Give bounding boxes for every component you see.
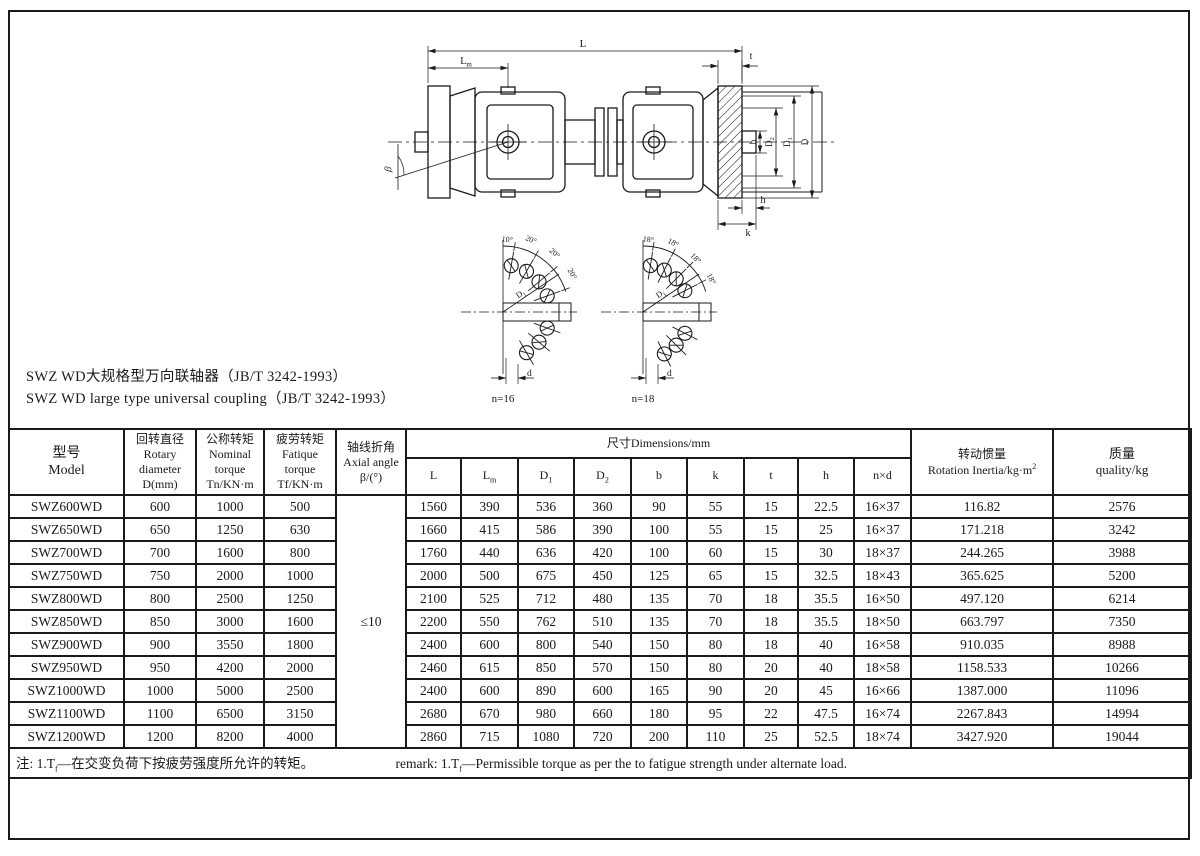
table-row: SWZ1100WD1100650031502680670980660180952… [9, 702, 1191, 725]
cell-Lm: 600 [461, 633, 518, 656]
cell-h: 35.5 [798, 587, 854, 610]
cell-D1: 536 [518, 495, 574, 518]
cell-rotary-diameter: 900 [124, 633, 196, 656]
coupling-drawing-svg: L Lm t β b D2 D1 D h k 10° 20° 20° 20° D… [370, 18, 890, 420]
cell-D1: 890 [518, 679, 574, 702]
cell-nominal-torque: 2500 [196, 587, 264, 610]
cell-D2: 510 [574, 610, 631, 633]
cell-model: SWZ800WD [9, 587, 124, 610]
bolt16-angle-2: 20° [547, 246, 561, 260]
cell-D1: 636 [518, 541, 574, 564]
cell-h: 52.5 [798, 725, 854, 748]
cell-k: 55 [687, 495, 744, 518]
cell-D2: 540 [574, 633, 631, 656]
bolt18-angle-top: 18° [642, 234, 654, 244]
table-row: SWZ800WD80025001250210052571248013570183… [9, 587, 1191, 610]
cell-Lm: 415 [461, 518, 518, 541]
cell-nominal-torque: 3550 [196, 633, 264, 656]
header-nominal-torque: 公称转矩 Nominal torque Tn/KN·m [196, 429, 264, 495]
cell-nxd: 16×66 [854, 679, 911, 702]
bolt16-d-label: d [527, 369, 532, 379]
cell-rotary-diameter: 1100 [124, 702, 196, 725]
cell-Lm: 440 [461, 541, 518, 564]
cell-fatigue-torque: 500 [264, 495, 336, 518]
cell-inertia: 910.035 [911, 633, 1053, 656]
dim-label-k: k [746, 228, 751, 239]
cell-D1: 586 [518, 518, 574, 541]
cell-k: 110 [687, 725, 744, 748]
cell-quality: 19044 [1053, 725, 1191, 748]
cell-inertia: 3427.920 [911, 725, 1053, 748]
cell-quality: 5200 [1053, 564, 1191, 587]
cell-h: 30 [798, 541, 854, 564]
cell-k: 55 [687, 518, 744, 541]
cell-h: 47.5 [798, 702, 854, 725]
cell-D2: 600 [574, 679, 631, 702]
cell-L: 2680 [406, 702, 461, 725]
bolt18-d-label: d [667, 369, 672, 379]
table-row: SWZ1000WD1000500025002400600890600165902… [9, 679, 1191, 702]
title-chinese: SWZ WD大规格型万向联轴器（JB/T 3242-1993） [26, 366, 395, 388]
table-row: SWZ1200WD1200820040002860715108072020011… [9, 725, 1191, 748]
cell-quality: 7350 [1053, 610, 1191, 633]
cell-rotary-diameter: 650 [124, 518, 196, 541]
cell-model: SWZ1000WD [9, 679, 124, 702]
cell-quality: 2576 [1053, 495, 1191, 518]
cell-inertia: 2267.843 [911, 702, 1053, 725]
cell-D1: 712 [518, 587, 574, 610]
header-dim-b: b [631, 458, 687, 495]
note-row: 注: 1.Tf—在交变负荷下按疲劳强度所允许的转矩。 remark: 1.Tf—… [9, 748, 1191, 778]
table-row: SWZ650WD65012506301660415586390100551525… [9, 518, 1191, 541]
cell-b: 180 [631, 702, 687, 725]
cell-axial-angle: ≤10 [336, 495, 406, 748]
cell-t: 18 [744, 587, 798, 610]
cell-D2: 570 [574, 656, 631, 679]
cell-Lm: 550 [461, 610, 518, 633]
spec-table-body: SWZ600WD6001000500≤101560390536360905515… [9, 495, 1191, 748]
cell-nominal-torque: 4200 [196, 656, 264, 679]
cell-rotary-diameter: 750 [124, 564, 196, 587]
cell-h: 32.5 [798, 564, 854, 587]
cell-inertia: 171.218 [911, 518, 1053, 541]
cell-nxd: 18×74 [854, 725, 911, 748]
cell-b: 150 [631, 633, 687, 656]
header-dim-h: h [798, 458, 854, 495]
table-row: SWZ900WD90035501800240060080054015080184… [9, 633, 1191, 656]
bolt18-angle-3: 18° [705, 272, 718, 286]
cell-t: 18 [744, 633, 798, 656]
cell-model: SWZ850WD [9, 610, 124, 633]
cell-nominal-torque: 5000 [196, 679, 264, 702]
cell-L: 1560 [406, 495, 461, 518]
cell-t: 15 [744, 495, 798, 518]
dim-label-beta: β [383, 165, 395, 173]
cell-D2: 450 [574, 564, 631, 587]
cell-h: 45 [798, 679, 854, 702]
note-english: remark: 1.Tf—Permissible torque as per t… [396, 756, 847, 771]
header-dim-k: k [687, 458, 744, 495]
cell-Lm: 390 [461, 495, 518, 518]
cell-h: 22.5 [798, 495, 854, 518]
cell-Lm: 615 [461, 656, 518, 679]
cell-b: 150 [631, 656, 687, 679]
cell-model: SWZ650WD [9, 518, 124, 541]
dim-label-D: D [800, 138, 810, 145]
cell-b: 90 [631, 495, 687, 518]
cell-quality: 3988 [1053, 541, 1191, 564]
cell-inertia: 1158.533 [911, 656, 1053, 679]
cell-L: 2400 [406, 679, 461, 702]
cell-b: 135 [631, 610, 687, 633]
cell-nominal-torque: 3000 [196, 610, 264, 633]
cell-k: 65 [687, 564, 744, 587]
cell-t: 15 [744, 541, 798, 564]
header-dim-D1: D1 [518, 458, 574, 495]
header-rotation-inertia: 转动惯量 Rotation Inertia/kg·m2 [911, 429, 1053, 495]
cell-fatigue-torque: 2500 [264, 679, 336, 702]
cell-D1: 850 [518, 656, 574, 679]
cell-t: 20 [744, 679, 798, 702]
cell-t: 20 [744, 656, 798, 679]
cell-nxd: 18×43 [854, 564, 911, 587]
header-axial-angle: 轴线折角 Axial angle β/(°) [336, 429, 406, 495]
cell-D2: 720 [574, 725, 631, 748]
cell-nominal-torque: 8200 [196, 725, 264, 748]
cell-D1: 675 [518, 564, 574, 587]
dim-label-L: L [580, 38, 587, 50]
bolt18-n-label: n=18 [632, 393, 655, 405]
cell-rotary-diameter: 950 [124, 656, 196, 679]
cell-fatigue-torque: 800 [264, 541, 336, 564]
header-dimensions: 尺寸Dimensions/mm [406, 429, 911, 458]
cell-k: 70 [687, 610, 744, 633]
cell-inertia: 116.82 [911, 495, 1053, 518]
cell-t: 15 [744, 564, 798, 587]
cell-quality: 3242 [1053, 518, 1191, 541]
cell-D1: 1080 [518, 725, 574, 748]
cell-h: 40 [798, 656, 854, 679]
bolt16-angle-1: 20° [524, 233, 538, 246]
cell-quality: 8988 [1053, 633, 1191, 656]
cell-quality: 10266 [1053, 656, 1191, 679]
cell-Lm: 525 [461, 587, 518, 610]
cell-fatigue-torque: 630 [264, 518, 336, 541]
cell-L: 2100 [406, 587, 461, 610]
cell-k: 80 [687, 633, 744, 656]
cell-b: 135 [631, 587, 687, 610]
bolt-circle-view-16 [461, 240, 577, 384]
cell-nxd: 16×37 [854, 495, 911, 518]
header-fatigue-torque: 疲劳转矩 Fatique torque Tf/KN·m [264, 429, 336, 495]
cell-D1: 980 [518, 702, 574, 725]
dim-label-h: h [761, 195, 766, 206]
header-model: 型号 Model [9, 429, 124, 495]
cell-quality: 6214 [1053, 587, 1191, 610]
cell-D2: 480 [574, 587, 631, 610]
cell-Lm: 715 [461, 725, 518, 748]
cell-nxd: 16×50 [854, 587, 911, 610]
cell-inertia: 1387.000 [911, 679, 1053, 702]
header-quality: 质量 quality/kg [1053, 429, 1191, 495]
spec-table-head: 型号 Model 回转直径 Rotary diameter D(mm) 公称转矩… [9, 429, 1191, 495]
cell-model: SWZ600WD [9, 495, 124, 518]
cell-b: 100 [631, 518, 687, 541]
cell-fatigue-torque: 1250 [264, 587, 336, 610]
table-row: SWZ750WD75020001000200050067545012565153… [9, 564, 1191, 587]
header-dim-D2: D2 [574, 458, 631, 495]
cell-Lm: 500 [461, 564, 518, 587]
cell-t: 25 [744, 725, 798, 748]
cell-D2: 420 [574, 541, 631, 564]
cell-quality: 14994 [1053, 702, 1191, 725]
cell-nominal-torque: 6500 [196, 702, 264, 725]
cell-inertia: 365.625 [911, 564, 1053, 587]
cell-inertia: 663.797 [911, 610, 1053, 633]
cell-b: 165 [631, 679, 687, 702]
cell-model: SWZ1100WD [9, 702, 124, 725]
cell-h: 40 [798, 633, 854, 656]
cell-model: SWZ1200WD [9, 725, 124, 748]
cell-model: SWZ750WD [9, 564, 124, 587]
cell-nxd: 18×37 [854, 541, 911, 564]
cell-inertia: 497.120 [911, 587, 1053, 610]
cell-b: 125 [631, 564, 687, 587]
cell-fatigue-torque: 2000 [264, 656, 336, 679]
note-chinese: 注: 1.Tf—在交变负荷下按疲劳强度所允许的转矩。 [16, 756, 314, 771]
cell-b: 100 [631, 541, 687, 564]
cell-inertia: 244.265 [911, 541, 1053, 564]
cell-nxd: 16×58 [854, 633, 911, 656]
cell-fatigue-torque: 1000 [264, 564, 336, 587]
cell-L: 1660 [406, 518, 461, 541]
cell-nxd: 18×50 [854, 610, 911, 633]
title-block: SWZ WD大规格型万向联轴器（JB/T 3242-1993） SWZ WD l… [26, 366, 395, 411]
cell-k: 95 [687, 702, 744, 725]
cell-nxd: 18×58 [854, 656, 911, 679]
table-row: SWZ600WD6001000500≤101560390536360905515… [9, 495, 1191, 518]
cell-h: 35.5 [798, 610, 854, 633]
cell-model: SWZ900WD [9, 633, 124, 656]
dim-label-Lm: Lm [460, 56, 472, 69]
dim-label-t: t [750, 51, 753, 62]
cell-rotary-diameter: 1000 [124, 679, 196, 702]
cell-h: 25 [798, 518, 854, 541]
cell-t: 22 [744, 702, 798, 725]
cell-Lm: 600 [461, 679, 518, 702]
bolt18-angle-2: 18° [689, 251, 703, 265]
cell-L: 2400 [406, 633, 461, 656]
cell-D2: 660 [574, 702, 631, 725]
cell-D2: 390 [574, 518, 631, 541]
cell-k: 60 [687, 541, 744, 564]
cell-model: SWZ700WD [9, 541, 124, 564]
cell-rotary-diameter: 600 [124, 495, 196, 518]
cell-t: 15 [744, 518, 798, 541]
cell-L: 2460 [406, 656, 461, 679]
cell-nominal-torque: 1000 [196, 495, 264, 518]
cell-rotary-diameter: 1200 [124, 725, 196, 748]
cell-k: 80 [687, 656, 744, 679]
cell-L: 1760 [406, 541, 461, 564]
cell-D1: 762 [518, 610, 574, 633]
header-dim-t: t [744, 458, 798, 495]
header-dim-L: L [406, 458, 461, 495]
cell-nominal-torque: 1600 [196, 541, 264, 564]
cell-D2: 360 [574, 495, 631, 518]
header-dim-Lm: Lm [461, 458, 518, 495]
bolt18-angle-1: 18° [666, 236, 680, 249]
table-row: SWZ950WD95042002000246061585057015080204… [9, 656, 1191, 679]
cell-rotary-diameter: 700 [124, 541, 196, 564]
bolt16-angle-3: 20° [566, 267, 579, 281]
cell-quality: 11096 [1053, 679, 1191, 702]
cell-nominal-torque: 2000 [196, 564, 264, 587]
cell-nxd: 16×74 [854, 702, 911, 725]
cell-rotary-diameter: 850 [124, 610, 196, 633]
cell-fatigue-torque: 1600 [264, 610, 336, 633]
cell-fatigue-torque: 1800 [264, 633, 336, 656]
header-rotary-diameter: 回转直径 Rotary diameter D(mm) [124, 429, 196, 495]
cell-fatigue-torque: 3150 [264, 702, 336, 725]
cell-Lm: 670 [461, 702, 518, 725]
table-row: SWZ850WD85030001600220055076251013570183… [9, 610, 1191, 633]
bolt16-angle-top: 10° [501, 234, 513, 244]
bolt16-n-label: n=16 [492, 393, 515, 405]
cell-rotary-diameter: 800 [124, 587, 196, 610]
cell-L: 2000 [406, 564, 461, 587]
technical-drawing: L Lm t β b D2 D1 D h k 10° 20° 20° 20° D… [370, 18, 890, 420]
cell-nominal-torque: 1250 [196, 518, 264, 541]
cell-model: SWZ950WD [9, 656, 124, 679]
cell-L: 2200 [406, 610, 461, 633]
cell-fatigue-torque: 4000 [264, 725, 336, 748]
cell-k: 90 [687, 679, 744, 702]
cell-nxd: 16×37 [854, 518, 911, 541]
title-english: SWZ WD large type universal coupling（JB/… [26, 388, 395, 410]
dim-label-b: b [748, 139, 758, 144]
cell-L: 2860 [406, 725, 461, 748]
cell-D1: 800 [518, 633, 574, 656]
cell-t: 18 [744, 610, 798, 633]
spec-table: 型号 Model 回转直径 Rotary diameter D(mm) 公称转矩… [8, 428, 1192, 779]
header-dim-nxd: n×d [854, 458, 911, 495]
cell-k: 70 [687, 587, 744, 610]
cell-b: 200 [631, 725, 687, 748]
table-row: SWZ700WD70016008001760440636420100601530… [9, 541, 1191, 564]
